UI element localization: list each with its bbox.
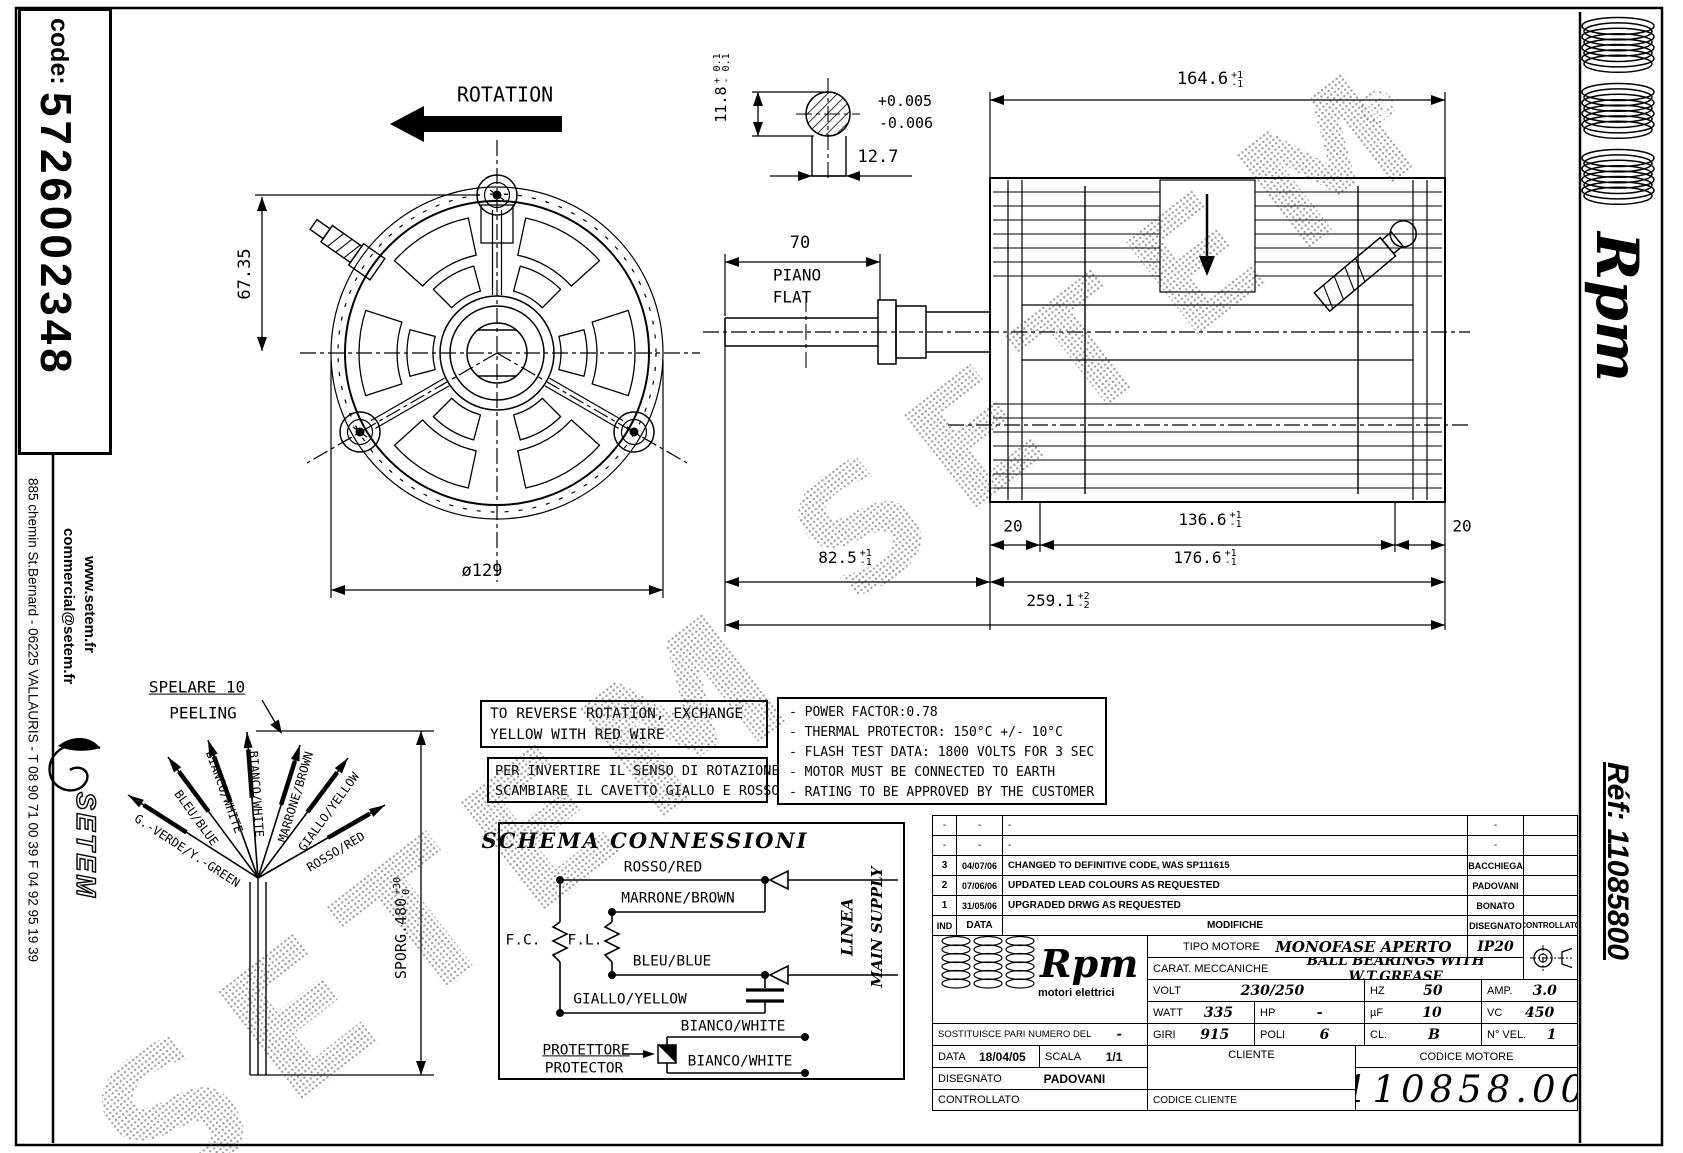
- note-line: SCAMBIARE IL CAVETTO GIALLO E ROSSO: [495, 781, 760, 801]
- dim-value: 11.8: [714, 86, 730, 122]
- schema-wire-brown: MARRONE/BROWN: [621, 891, 735, 906]
- vc-label: VC: [1487, 1007, 1502, 1019]
- email-text: commercial@setem.fr: [61, 528, 76, 684]
- disegnato-label: DISEGNATO: [938, 1073, 1002, 1085]
- dim-front-diameter: ø129: [462, 563, 503, 581]
- schema-wire-yellow: GIALLO/YELLOW: [573, 992, 687, 1007]
- dim-gap-left: 20: [1003, 519, 1022, 536]
- dim-value: 82.5: [818, 550, 857, 567]
- code-value: 5726002348: [33, 92, 77, 377]
- dim-value: 136.6: [1178, 512, 1226, 529]
- giri-label: GIRI: [1153, 1029, 1176, 1041]
- amp-value: 3.0: [1517, 983, 1572, 999]
- dim-shaft-flat-height: 11.8 + 0.1- 0.1: [713, 53, 731, 122]
- rev-header-drawn: DISEGNATO: [1467, 915, 1524, 936]
- rev-date: -: [956, 835, 1003, 856]
- vc-cell: VC 450: [1481, 1001, 1578, 1024]
- scala-value: 1/1: [1086, 1050, 1142, 1064]
- carat-meccaniche-cell: CARAT. MECCANICHE BALL BEARINGS WITH W.T…: [1147, 957, 1524, 980]
- uf-label: µF: [1370, 1007, 1383, 1019]
- cliente-cell: CLIENTE: [1147, 1045, 1356, 1090]
- data-label: DATA: [938, 1051, 966, 1063]
- rpm-logo-subtext: motori elettrici: [1038, 987, 1114, 999]
- poli-label: POLI: [1260, 1029, 1285, 1041]
- watt-cell: WATT 335: [1147, 1001, 1255, 1024]
- rev-desc: -: [1002, 815, 1468, 836]
- watt-value: 335: [1188, 1005, 1249, 1021]
- codice-cliente-cell: CODICE CLIENTE: [1147, 1089, 1356, 1111]
- dim-shaft-width: 12.7: [858, 149, 899, 167]
- engineering-drawing-sheet: SETEM ® SETEM code: 5726002348 885 chemi…: [0, 0, 1683, 1153]
- tipo-motore-cell: TIPO MOTORE MONOFASE APERTO: [1147, 935, 1468, 958]
- codice-motore-header-cell: CODICE MOTORE: [1355, 1045, 1578, 1068]
- reference-number: Réf: 11085800: [1602, 762, 1632, 960]
- tol-minus: -1: [1231, 80, 1243, 89]
- dim-gap-right: 20: [1452, 519, 1471, 536]
- dim-value: 164.6: [1177, 71, 1228, 89]
- rev-date: 07/06/06: [956, 875, 1003, 896]
- hz-cell: HZ 50: [1364, 979, 1482, 1002]
- hp-label: HP: [1260, 1007, 1275, 1019]
- spec-line: - FLASH TEST DATA: 1800 VOLTS FOR 3 SEC: [789, 743, 1095, 763]
- schema-wire-white-top: BIANCO/WHITE: [681, 1019, 786, 1034]
- rev-drawn: -: [1467, 835, 1524, 856]
- tol-minus: 0: [402, 877, 411, 895]
- rev-checked: [1523, 875, 1578, 896]
- spec-line: - RATING TO BE APPROVED BY THE CUSTOMER: [789, 783, 1095, 803]
- rev-header-checked: CONTROLLATO: [1523, 915, 1578, 936]
- title-block: - - - - - - - - 3 04/07/06 CHANGED TO DE…: [932, 815, 1578, 1111]
- specs-note-box: - POWER FACTOR:0.78 - THERMAL PROTECTOR:…: [777, 697, 1107, 805]
- dim-shaft-extension: 82.5 +1-1: [818, 549, 872, 567]
- dim-value: 259.1: [1026, 593, 1074, 610]
- address-text: 885 chemin St.Bernard - 06225 VALLAURIS …: [26, 478, 40, 962]
- nvel-value: 1: [1531, 1027, 1572, 1043]
- rev-ind: 3: [932, 855, 957, 876]
- tol-minus: - 0.1: [722, 53, 731, 83]
- note-line: YELLOW WITH RED WIRE: [490, 725, 758, 746]
- cl-cell: CL. B: [1364, 1023, 1482, 1046]
- rev-checked: [1523, 835, 1578, 856]
- tipo-label: TIPO MOTORE: [1183, 941, 1260, 953]
- disegnato-cell: DISEGNATO PADOVANI: [932, 1067, 1148, 1090]
- dim-total-length: 259.1 +2-2: [1026, 592, 1089, 610]
- flat-label-it: PIANO: [773, 268, 821, 285]
- rev-ind: 2: [932, 875, 957, 896]
- rev-date: 04/07/06: [956, 855, 1003, 876]
- peeling-label-en: PEELING: [169, 706, 236, 723]
- rev-date: 31/05/06: [956, 895, 1003, 916]
- spec-line: - MOTOR MUST BE CONNECTED TO EARTH: [789, 763, 1095, 783]
- schema-title: SCHEMA CONNESSIONI: [482, 830, 809, 852]
- schema-linea-label: LINEA: [840, 898, 857, 956]
- schema-protettore-label: PROTETTORE: [542, 1043, 629, 1058]
- rev-header-ind: IND: [932, 915, 957, 936]
- note-line: TO REVERSE ROTATION, EXCHANGE: [490, 704, 758, 725]
- schema-wire-red: ROSSO/RED: [624, 860, 703, 875]
- rev-checked: [1523, 855, 1578, 876]
- volt-cell: VOLT 230/250: [1147, 979, 1365, 1002]
- hp-cell: HP -: [1254, 1001, 1365, 1024]
- note-line: PER INVERTIRE IL SENSO DI ROTAZIONE: [495, 761, 760, 781]
- data-value: 18/04/05: [971, 1050, 1034, 1064]
- schema-main-supply-label: MAIN SUPPLY: [870, 867, 886, 988]
- hz-label: HZ: [1370, 985, 1385, 997]
- rev-drawn: -: [1467, 815, 1524, 836]
- codice-motore-value-cell: 110858.00: [1355, 1067, 1578, 1111]
- rev-desc: -: [1002, 835, 1468, 856]
- rev-date: -: [956, 815, 1003, 836]
- disegnato-value: PADOVANI: [1007, 1072, 1142, 1086]
- tol-minus: -2: [1078, 601, 1090, 610]
- dim-lead-protrusion: SPORG.480 +300: [393, 877, 411, 979]
- scala-label: SCALA: [1045, 1051, 1081, 1063]
- setem-logo-text: SETEM: [72, 792, 99, 900]
- giri-value: 915: [1181, 1027, 1249, 1043]
- schema-protector-label: PROTECTOR: [545, 1061, 624, 1076]
- volt-label: VOLT: [1153, 985, 1181, 997]
- carat-value: BALL BEARINGS WITH W.T.GREASE: [1273, 957, 1518, 980]
- sostituisce-cell: SOSTITUISCE PARI NUMERO DEL -: [932, 1023, 1148, 1046]
- fit-tolerance-plus: +0.005: [878, 94, 932, 110]
- amp-label: AMP.: [1487, 985, 1512, 997]
- rev-drawn: BONATO: [1467, 895, 1524, 916]
- tol-minus: -1: [1225, 558, 1237, 567]
- rotation-label: ROTATION: [457, 85, 553, 106]
- nvel-label: N° VEL.: [1487, 1029, 1526, 1041]
- spec-line: - POWER FACTOR:0.78: [789, 703, 1095, 723]
- dim-flat-length: 70: [790, 235, 810, 253]
- hz-value: 50: [1390, 983, 1476, 999]
- rev-checked: [1523, 895, 1578, 916]
- rev-header-date: DATA: [956, 915, 1003, 936]
- flat-label-en: FLAT: [773, 290, 812, 307]
- amp-cell: AMP. 3.0: [1481, 979, 1578, 1002]
- dim-body-length: 176.6 +1-1: [1173, 549, 1236, 567]
- rev-desc: UPGRADED DRWG AS REQUESTED: [1002, 895, 1468, 916]
- rev-ind: -: [932, 835, 957, 856]
- dim-value: 176.6: [1173, 550, 1221, 567]
- rev-ind: 1: [932, 895, 957, 916]
- hp-value: -: [1280, 1005, 1359, 1021]
- vc-value: 450: [1507, 1005, 1572, 1021]
- tol-minus: -1: [1230, 520, 1242, 529]
- cl-label: CL.: [1370, 1029, 1387, 1041]
- code-label: code:: [46, 18, 71, 85]
- uf-value: 10: [1388, 1005, 1476, 1021]
- schema-wire-white-bottom: BIANCO/WHITE: [688, 1054, 793, 1069]
- sostituisce-value: -: [1096, 1027, 1142, 1042]
- fit-tolerance-minus: -0.006: [879, 116, 933, 132]
- rev-header-desc: MODIFICHE: [1002, 915, 1468, 936]
- scala-cell: SCALA 1/1: [1039, 1045, 1148, 1068]
- schema-wire-blue: BLEU/BLUE: [633, 954, 712, 969]
- tol-minus: -1: [860, 558, 872, 567]
- spec-line: - THERMAL PROTECTOR: 150°C +/- 10°C: [789, 723, 1095, 743]
- poli-value: 6: [1290, 1027, 1359, 1043]
- carat-label: CARAT. MECCANICHE: [1153, 963, 1268, 975]
- ip-value: IP20: [1477, 939, 1514, 955]
- peeling-label-it: SPELARE 10: [149, 680, 245, 697]
- rpm-logo-text: Rpm: [1040, 941, 1138, 986]
- sostituisce-label: SOSTITUISCE PARI NUMERO DEL: [938, 1029, 1091, 1040]
- controllato-cell: CONTROLLATO: [932, 1089, 1148, 1111]
- schema-fc-label: F.C.: [506, 933, 541, 948]
- reverse-rotation-note-en: TO REVERSE ROTATION, EXCHANGE YELLOW WIT…: [480, 700, 768, 748]
- rev-ind: -: [932, 815, 957, 836]
- dim-core-length: 136.6 +1-1: [1178, 511, 1241, 529]
- dim-front-height: 67.35: [237, 248, 255, 299]
- nvel-cell: N° VEL. 1: [1481, 1023, 1578, 1046]
- uf-cell: µF 10: [1364, 1001, 1482, 1024]
- rev-drawn: PADOVANI: [1467, 875, 1524, 896]
- ip-cell: IP20: [1467, 935, 1524, 958]
- rev-desc: CHANGED TO DEFINITIVE CODE, WAS SP111615: [1002, 855, 1468, 876]
- lead-peeling-view: [128, 700, 434, 1075]
- tipo-value: MONOFASE APERTO: [1265, 938, 1462, 956]
- projection-symbol-cell: [1523, 935, 1578, 980]
- poli-cell: POLI 6: [1254, 1023, 1365, 1046]
- cl-value: B: [1392, 1027, 1476, 1043]
- watt-label: WATT: [1153, 1007, 1183, 1019]
- rev-checked: [1523, 815, 1578, 836]
- data-cell: DATA 18/04/05: [932, 1045, 1040, 1068]
- schema-fl-label: F.L.: [568, 933, 603, 948]
- reverse-rotation-note-it: PER INVERTIRE IL SENSO DI ROTAZIONE SCAM…: [487, 757, 768, 803]
- volt-value: 230/250: [1186, 983, 1359, 999]
- giri-cell: GIRI 915: [1147, 1023, 1255, 1046]
- dim-value: SPORG.480: [394, 898, 410, 979]
- dim-overall-length: 164.6 +1-1: [1177, 71, 1243, 89]
- rpm-margin-logo-text: Rpm: [1588, 232, 1646, 382]
- first-angle-projection-icon: [1529, 938, 1572, 978]
- rev-desc: UPDATED LEAD COLOURS AS REQUESTED: [1002, 875, 1468, 896]
- website-text: www.setem.fr: [82, 556, 97, 653]
- front-view: [255, 106, 700, 598]
- rev-drawn: BACCHIEGA: [1467, 855, 1524, 876]
